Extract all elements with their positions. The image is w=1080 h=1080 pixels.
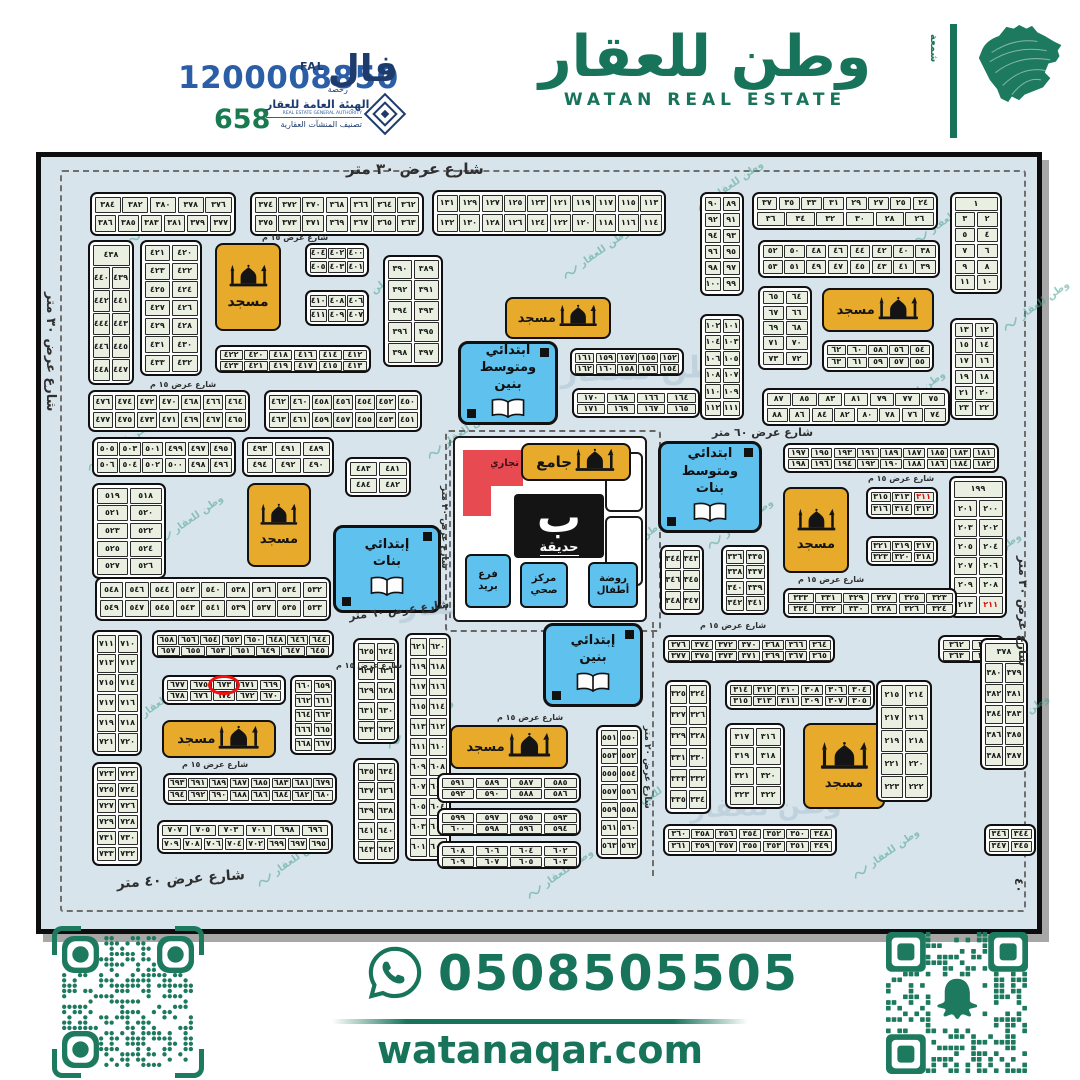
plot-193: ١٩٣ (834, 448, 856, 458)
mosque-label: مسجد (797, 537, 835, 552)
plot-360: ٣٦٠ (668, 829, 690, 840)
plot-block: ٤١٠٤٠٨٤٠٦٤١١٤٠٩٤٠٧ (305, 290, 369, 326)
plot-block: ٤٢١٤٢٠٤٢٣٤٢٢٤٢٥٤٢٤٤٢٧٤٢٦٤٢٩٤٢٨٤٣١٤٣٠٤٣٣٤… (140, 240, 202, 376)
plot-152: ١٥٢ (660, 353, 680, 363)
plot-521: ٥٢١ (97, 505, 129, 521)
plot-388: ٣٨٨ (985, 746, 1004, 765)
plot-672: ٦٧٢ (236, 691, 258, 701)
plot-117: ١١٧ (595, 195, 616, 213)
plot-block: ٦٥٦٤٦٧٦٦٦٩٦٨٧١٧٠٧٣٧٢ (758, 286, 812, 370)
plot-320: ٣٢٠ (892, 552, 912, 562)
plot-385: ٣٨٥ (118, 215, 140, 232)
entrance-mark (744, 448, 753, 457)
plot-594: ٥٩٤ (544, 824, 577, 834)
school-block: إبتدائيبنين (543, 623, 643, 707)
plot-365: ٣٦٥ (809, 651, 831, 661)
plot-658: ٦٥٨ (157, 635, 177, 645)
plot-162: ١٦٢ (575, 364, 595, 374)
plot-711: ٧١١ (97, 635, 117, 653)
plot-57: ٥٧ (889, 357, 908, 368)
plot-692: ٦٩٢ (188, 790, 207, 801)
school-label: بنات (373, 554, 401, 570)
plot-471: ٤٧١ (159, 412, 180, 428)
plot-493: ٤٩٣ (247, 442, 274, 457)
plot-720: ٧٢٠ (118, 733, 138, 751)
plot-527: ٥٢٧ (97, 558, 129, 574)
plot-336: ٣٣٦ (726, 550, 745, 564)
plot-362: ٣٦٢ (943, 640, 971, 650)
plot-block: ٥٠٥٥٠٣٥٠١٤٩٩٤٩٧٤٩٥٥٠٦٥٠٤٥٠٢٥٠٠٤٩٨٤٩٦ (92, 437, 236, 477)
entrance-mark (467, 409, 476, 418)
plot-372: ٣٧٢ (715, 640, 737, 650)
plot-400: ٤٠٠ (347, 248, 364, 260)
plot-430: ٤٣٠ (172, 336, 198, 353)
plot-635: ٦٣٥ (358, 763, 376, 781)
plot-643: ٦٤٣ (358, 841, 376, 859)
plot-642: ٦٤٢ (377, 841, 395, 859)
plot-422: ٤٢٢ (172, 263, 198, 280)
school-block: ابتدائيومتوسطبنين (458, 341, 558, 425)
plot-block: ١٠٢١٠١١٠٤١٠٣١٠٦١٠٥١٠٨١٠٧١١٠١٠٩١١٢١١١ (700, 314, 744, 420)
plot-398: ٣٩٨ (388, 343, 413, 362)
plot-312: ٣١٢ (914, 504, 934, 515)
plot-539: ٥٣٩ (226, 600, 250, 617)
plot-377: ٣٧٧ (210, 215, 232, 232)
plot-111: ١١١ (723, 401, 740, 416)
plot-474: ٤٧٤ (115, 395, 136, 411)
plot-12: ١٢ (975, 323, 994, 337)
plot-671: ٦٧١ (236, 680, 258, 690)
plot-499: ٤٩٩ (165, 442, 186, 457)
garden-block: بحديقة (514, 494, 604, 558)
plot-314: ٣١٤ (730, 685, 752, 695)
plot-50: ٥٠ (784, 245, 804, 259)
plot-321: ٣٢١ (871, 541, 891, 551)
plot-733: ٧٣٣ (97, 847, 117, 862)
plot-662: ٦٦٢ (295, 694, 313, 707)
plot-600: ٦٠٠ (442, 824, 475, 834)
plot-367: ٣٦٧ (350, 215, 372, 232)
plot-429: ٤٢٩ (145, 318, 171, 335)
plot-550: ٥٥٠ (620, 730, 638, 747)
plot-218: ٢١٨ (905, 730, 928, 751)
mosque-block: مسجد (162, 720, 276, 758)
plot-34: ٣٤ (786, 212, 814, 226)
entrance-mark (540, 348, 549, 357)
plot-block: ٨٧٨٥٨٣٨١٧٩٧٧٧٥٨٨٨٦٨٤٨٢٨٠٧٨٧٦٧٤ (762, 388, 950, 426)
website-url[interactable]: watanaqar.com (0, 1028, 1080, 1072)
plot-block: ٦٠٨٦٠٦٦٠٤٦٠٢٦٠٩٦٠٧٦٠٥٦٠٣ (437, 841, 581, 869)
plot-380: ٣٨٠ (985, 663, 1004, 682)
plot-304: ٣٠٤ (848, 685, 870, 695)
mosque-label: مسجد (260, 532, 298, 547)
plot-323: ٣٢٣ (926, 593, 952, 603)
plot-390: ٣٩٠ (388, 260, 413, 279)
plot-100: ١٠٠ (705, 277, 722, 292)
plot-725: ٧٢٥ (97, 783, 117, 798)
plot-458: ٤٥٨ (312, 395, 332, 411)
plot-40: ٤٠ (893, 245, 913, 259)
entrance-mark (625, 630, 634, 639)
plot-680: ٦٨٠ (313, 790, 332, 801)
plot-30: ٣٠ (846, 212, 874, 226)
plot-376: ٣٧٦ (668, 640, 690, 650)
mosque-icon (819, 741, 870, 770)
plot-208: ٢٠٨ (979, 577, 1003, 595)
plot-7: ٧ (955, 244, 976, 258)
plot-77: ٧٧ (895, 393, 919, 407)
mosque-block: مسجد (450, 725, 568, 769)
plot-block: ٤٦٢٤٦٠٤٥٨٤٥٦٤٥٤٤٥٢٤٥٠٤٦٣٤٦١٤٥٩٤٥٧٤٥٥٤٥٣٤… (264, 390, 422, 432)
plot-132: ١٣٢ (437, 214, 458, 232)
plot-324: ٣٢٤ (689, 685, 707, 705)
plot-334: ٣٣٤ (788, 604, 814, 614)
commercial-strip-leg (463, 450, 491, 516)
plot-540: ٥٤٠ (201, 582, 225, 599)
plot-343: ٣٤٣ (683, 550, 700, 569)
plot-696: ٦٩٦ (302, 825, 329, 837)
plot-317: ٣١٧ (914, 541, 934, 551)
plot-344: ٣٤٤ (1011, 829, 1032, 840)
plot-624: ٦٢٤ (377, 643, 395, 661)
plot-461: ٤٦١ (290, 412, 310, 428)
service-label: صحي (531, 585, 558, 597)
plot-190: ١٩٠ (880, 459, 902, 469)
school-label: بنين (494, 377, 521, 393)
plot-171: ١٧١ (577, 404, 606, 414)
plot-548: ٥٤٨ (100, 582, 124, 599)
plot-121: ١٢١ (550, 195, 571, 213)
plot-684: ٦٨٤ (272, 790, 291, 801)
plot-631: ٦٣١ (358, 702, 376, 720)
plot-191: ١٩١ (857, 448, 879, 458)
plot-547: ٥٤٧ (125, 600, 149, 617)
plot-block: ٤٠٤٤٠٢٤٠٠٤٠٥٤٠٣٤٠١ (305, 243, 369, 277)
street-label: شارع عرض ١٥ م (700, 621, 766, 630)
watermark-squiggle-icon (254, 870, 276, 890)
plot-114: ١١٤ (640, 214, 661, 232)
street-label: شارع عرض ٣٠ متر (43, 292, 58, 411)
plot-83: ٨٣ (818, 393, 842, 407)
plot-156: ١٥٦ (638, 364, 658, 374)
plot-56: ٥٦ (889, 345, 908, 356)
plot-558: ٥٥٨ (620, 802, 638, 819)
plot-421: ٤٢١ (145, 245, 171, 262)
plot-372: ٣٧٢ (278, 197, 300, 214)
plot-16: ١٦ (975, 354, 994, 368)
plot-726: ٧٢٦ (118, 799, 138, 814)
plot-375: ٣٧٥ (691, 651, 713, 661)
book-icon (490, 398, 526, 419)
plot-124: ١٢٤ (527, 214, 548, 232)
plot-503: ٥٠٣ (119, 442, 140, 457)
plot-110: ١١٠ (705, 384, 722, 399)
plot-356: ٣٥٦ (715, 829, 737, 840)
plot-411: ٤١١ (310, 309, 327, 322)
plot-194: ١٩٤ (834, 459, 856, 469)
fal-license-logo: FAL فال رخصة (300, 52, 398, 94)
plot-370: ٣٧٠ (302, 197, 324, 214)
real-estate-flyer: 1200008850 FAL فال رخصة 658 الهيئة العام… (0, 0, 1080, 1080)
plot-387: ٣٨٧ (1005, 746, 1024, 765)
plot-325: ٣٢٥ (670, 685, 688, 705)
plot-33: ٣٣ (801, 197, 822, 211)
watermark-squiggle-icon (1000, 314, 1022, 334)
plot-686: ٦٨٦ (251, 790, 270, 801)
plot-472: ٤٧٢ (137, 395, 158, 411)
plot-332: ٣٣٢ (815, 604, 841, 614)
plot-38: ٣٨ (915, 245, 935, 259)
plot-312: ٣١٢ (753, 685, 775, 695)
plot-633: ٦٣٣ (358, 721, 376, 739)
plot-652: ٦٥٢ (222, 635, 242, 645)
plot-673: ٦٧٣ (213, 680, 235, 690)
plot-68: ٦٨ (786, 321, 808, 335)
plot-371: ٣٧١ (738, 651, 760, 661)
plot-337: ٣٣٧ (746, 565, 765, 579)
plot-617: ٦١٧ (410, 678, 428, 697)
plot-561: ٥٦١ (601, 820, 619, 837)
plot-441: ٤٤١ (112, 290, 130, 311)
plot-block: ٣٧٦٣٧٤٣٧٢٣٧٠٣٦٨٣٦٦٣٦٤٣٧٧٣٧٥٣٧٣٣٧١٣٦٩٣٦٧٣… (663, 635, 835, 663)
plot-608: ٦٠٨ (442, 846, 475, 856)
plot-380: ٣٨٠ (150, 197, 176, 214)
plot-536: ٥٣٦ (252, 582, 276, 599)
brand-side-word: شمعة (928, 34, 939, 134)
plot-620: ٦٢٠ (429, 638, 447, 657)
plot-330: ٣٣٠ (689, 748, 707, 768)
plot-462: ٤٦٢ (269, 395, 289, 411)
plot-block: ٤٩٣٤٩١٤٨٩٤٩٤٤٩٢٤٩٠ (242, 437, 334, 477)
plot-492: ٤٩٢ (275, 458, 302, 473)
plot-221: ٢٢١ (881, 753, 904, 774)
plot-55: ٥٥ (910, 357, 929, 368)
plot-481: ٤٨١ (379, 462, 407, 477)
plot-373: ٣٧٣ (715, 651, 737, 661)
plot-22: ٢٢ (975, 401, 994, 415)
plot-382: ٣٨٢ (122, 197, 148, 214)
plot-129: ١٢٩ (459, 195, 480, 213)
plot-496: ٤٩٦ (210, 458, 231, 473)
plot-2: ٢ (977, 212, 998, 226)
plot-605: ٦٠٥ (510, 857, 543, 867)
plot-350: ٣٥٠ (786, 829, 808, 840)
plot-90: ٩٠ (705, 197, 722, 212)
plot-321: ٣٢١ (730, 767, 755, 785)
plot-3: ٣ (955, 212, 976, 226)
plot-41: ٤١ (893, 260, 913, 274)
plot-385: ٣٨٥ (1005, 726, 1024, 745)
plot-489: ٤٨٩ (303, 442, 330, 457)
plot-453: ٤٥٣ (376, 412, 396, 428)
whatsapp-number[interactable]: 0508505505 (438, 945, 799, 1002)
plot-669: ٦٦٩ (260, 680, 282, 690)
entrance-mark (552, 691, 561, 700)
plot-419: ٤١٩ (269, 361, 292, 371)
plot-block: ٩٠٨٩٩٢٩١٩٤٩٣٩٦٩٥٩٨٩٧١٠٠٩٩ (700, 192, 744, 296)
plot-20: ٢٠ (975, 386, 994, 400)
plot-676: ٦٧٦ (190, 691, 212, 701)
plot-89: ٨٩ (723, 197, 740, 212)
mosque-label: مسجد (837, 303, 875, 318)
mosque-icon (574, 448, 616, 472)
plot-347: ٣٤٧ (989, 841, 1010, 852)
plot-159: ١٥٩ (596, 353, 616, 363)
plot-688: ٦٨٨ (230, 790, 249, 801)
plot-353: ٣٥٣ (763, 841, 785, 852)
plot-115: ١١٥ (618, 195, 639, 213)
plot-107: ١٠٧ (723, 368, 740, 383)
plot-615: ٦١٥ (410, 698, 428, 717)
plot-374: ٣٧٤ (255, 197, 277, 214)
plot-220: ٢٢٠ (905, 753, 928, 774)
plot-654: ٦٥٤ (200, 635, 220, 645)
plot-703: ٧٠٣ (218, 825, 245, 837)
plot-11: ١١ (955, 275, 976, 289)
plot-1: ١ (955, 197, 998, 211)
plot-116: ١١٦ (618, 214, 639, 232)
plot-606: ٦٠٦ (476, 846, 509, 856)
plot-327: ٣٢٧ (871, 593, 897, 603)
plot-71: ٧١ (763, 336, 785, 350)
plot-418: ٤١٨ (269, 350, 292, 360)
plot-614: ٦١٤ (429, 698, 447, 717)
plot-112: ١١٢ (705, 401, 722, 416)
plot-59: ٥٩ (868, 357, 887, 368)
plot-block: ٧٠٧٧٠٥٧٠٣٧٠١٦٩٨٦٩٦٧٠٩٧٠٨٧٠٦٧٠٤٧٠٢٦٩٩٦٩٧٦… (157, 820, 333, 854)
qr-bracket (52, 926, 81, 955)
mosque-block: جامع (521, 443, 631, 481)
plot-88: ٨٨ (767, 408, 788, 422)
plot-52: ٥٢ (763, 245, 783, 259)
plot-423: ٤٢٣ (145, 263, 171, 280)
plot-85: ٨٥ (792, 393, 816, 407)
plot-714: ٧١٤ (118, 674, 138, 692)
plot-323: ٣٢٣ (730, 786, 755, 804)
plot-188: ١٨٨ (903, 459, 925, 469)
plot-395: ٣٩٥ (414, 322, 439, 341)
plot-164: ١٦٤ (667, 393, 696, 403)
plot-384: ٣٨٤ (985, 705, 1004, 724)
school-label: إبتدائي (365, 537, 410, 553)
plot-695: ٦٩٥ (309, 838, 329, 850)
plot-4: ٤ (977, 228, 998, 242)
plot-366: ٣٦٦ (785, 640, 807, 650)
plot-319: ٣١٩ (730, 747, 755, 765)
plot-213: ٢١٣ (954, 596, 978, 614)
plot-674: ٦٧٤ (213, 691, 235, 701)
plot-468: ٤٦٨ (181, 395, 202, 411)
plot-704: ٧٠٤ (225, 838, 245, 850)
plot-369: ٣٦٩ (326, 215, 348, 232)
plot-520: ٥٢٠ (130, 505, 162, 521)
plot-563: ٥٦٣ (601, 838, 619, 855)
plot-546: ٥٤٦ (125, 582, 149, 599)
plot-219: ٢١٩ (881, 730, 904, 751)
plot-195: ١٩٥ (811, 448, 833, 458)
plot-555: ٥٥٥ (601, 766, 619, 783)
plot-592: ٥٩٢ (442, 789, 475, 799)
plot-202: ٢٠٢ (979, 519, 1003, 537)
mosque-label: مسجد (227, 294, 268, 310)
plot-460: ٤٦٠ (290, 395, 310, 411)
plot-10: ١٠ (977, 275, 998, 289)
plot-block: ٣٤٦٣٤٤٣٤٧٣٤٥ (984, 824, 1036, 856)
plot-327: ٣٢٧ (670, 706, 688, 726)
plot-block: ٣١٧٣١٦٣١٩٣١٨٣٢١٣٢٠٣٢٣٣٢٢ (725, 723, 785, 809)
plot-591: ٥٩١ (442, 778, 475, 788)
plot-698: ٦٩٨ (274, 825, 301, 837)
plot-331: ٣٣١ (815, 593, 841, 603)
plot-53: ٥٣ (763, 260, 783, 274)
plot-211: ٢١١ (979, 596, 1003, 614)
plot-324: ٣٢٤ (926, 604, 952, 614)
plot-597: ٥٩٧ (476, 813, 509, 823)
plot-block: ٥٢٥٠٤٨٤٦٤٤٤٢٤٠٣٨٥٣٥١٤٩٤٧٤٥٤٣٤١٣٩ (758, 240, 940, 278)
plot-73: ٧٣ (763, 352, 785, 366)
plot-306: ٣٠٦ (825, 685, 847, 695)
entrance-mark (423, 532, 432, 541)
plot-374: ٣٧٤ (691, 640, 713, 650)
plot-329: ٣٢٩ (843, 593, 869, 603)
rega-name-ar: الهيئة العامة للعقار (266, 98, 362, 111)
plot-355: ٣٥٥ (739, 841, 761, 852)
plot-522: ٥٢٢ (130, 523, 162, 539)
plot-319: ٣١٩ (892, 541, 912, 551)
plot-82: ٨٢ (834, 408, 855, 422)
service-label: بريد (478, 581, 498, 593)
plot-35: ٣٥ (779, 197, 800, 211)
plot-215: ٢١٥ (881, 685, 904, 706)
plot-724: ٧٢٤ (118, 783, 138, 798)
plot-691: ٦٩١ (188, 778, 207, 789)
saudi-map-logo (966, 14, 1076, 140)
plot-601: ٦٠١ (410, 838, 428, 857)
plot-block: ٣٧٣٥٣٣٣١٢٩٢٧٢٥٢٤٣٦٣٤٣٢٣٠٢٨٢٦ (752, 192, 938, 230)
plot-363: ٣٦٣ (943, 651, 971, 661)
plot-81: ٨١ (844, 393, 868, 407)
plot-553: ٥٥٣ (601, 748, 619, 765)
plot-456: ٤٥٦ (333, 395, 353, 411)
plot-204: ٢٠٤ (979, 538, 1003, 556)
plot-687: ٦٨٧ (230, 778, 249, 789)
plot-455: ٤٥٥ (355, 412, 375, 428)
mosque-block: مسجد (505, 297, 611, 339)
plot-401: ٤٠١ (347, 261, 364, 273)
service-label: فرع (478, 569, 498, 581)
plot-389: ٣٨٩ (414, 260, 439, 279)
map-watermark: وطن للعقار (850, 826, 922, 881)
plot-413: ٤١٣ (343, 361, 366, 371)
street-label: شارع عرض ٢٠ متر (642, 726, 652, 809)
plot-361: ٣٦١ (668, 841, 690, 852)
mosque-icon (259, 503, 299, 526)
plot-534: ٥٣٤ (277, 582, 301, 599)
plot-379: ٣٧٩ (187, 215, 209, 232)
plot-333: ٣٣٣ (670, 769, 688, 789)
plot-block: ٢١٥٢١٤٢١٧٢١٦٢١٩٢١٨٢٢١٢٢٠٢٢٣٢٢٢ (876, 680, 932, 802)
plot-160: ١٦٠ (596, 364, 616, 374)
plot-328: ٣٢٨ (689, 727, 707, 747)
plot-482: ٤٨٢ (379, 478, 407, 493)
plot-203: ٢٠٣ (954, 519, 978, 537)
plot-645: ٦٤٥ (306, 646, 329, 656)
plot-728: ٧٢٨ (118, 815, 138, 830)
plot-394: ٣٩٤ (388, 301, 413, 320)
plot-625: ٦٢٥ (358, 643, 376, 661)
plot-310: ٣١٠ (777, 685, 799, 695)
plot-331: ٣٣١ (670, 748, 688, 768)
